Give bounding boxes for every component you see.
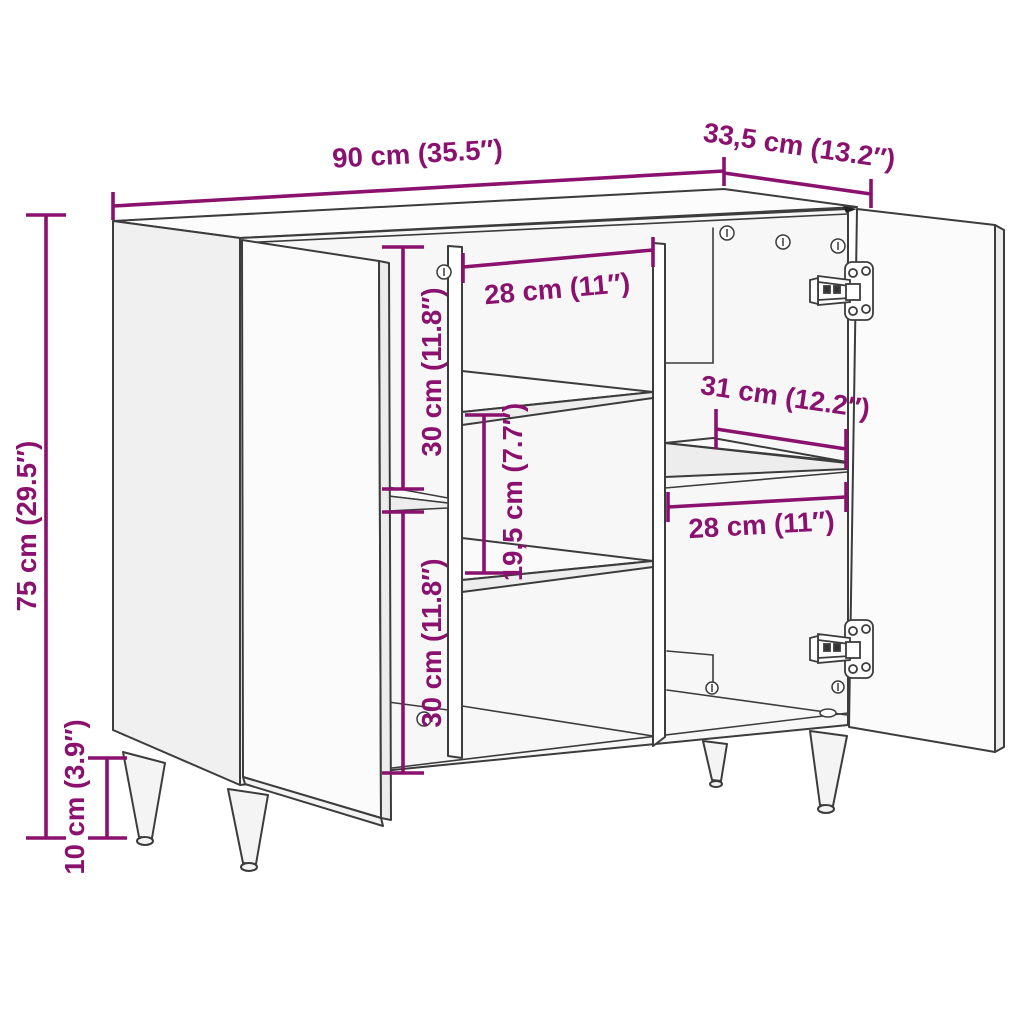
dim-leg-height	[88, 758, 127, 838]
dim-lower-left-height-label: 30 cm (11.8″)	[416, 558, 447, 727]
leg-back-left	[123, 752, 165, 845]
diagram-canvas: 90 cm (35.5″) 33,5 cm (13.2″) 75 cm (29.…	[0, 0, 1024, 1024]
left-side-panel	[113, 221, 240, 785]
leg-front-left	[228, 789, 268, 871]
dim-leg-height-label: 10 cm (3.9″)	[59, 719, 90, 874]
dim-width-label: 90 cm (35.5″)	[331, 133, 503, 173]
divider-left	[448, 246, 462, 758]
dim-upper-left-height-label: 30 cm (11.8″)	[416, 287, 447, 456]
dim-depth-label: 33,5 cm (13.2″)	[701, 116, 897, 174]
left-door	[242, 240, 391, 826]
cabinet-dimension-diagram: 90 cm (35.5″) 33,5 cm (13.2″) 75 cm (29.…	[0, 0, 1024, 1024]
dim-height-label: 75 cm (29.5″)	[11, 441, 42, 612]
divider-right	[653, 243, 665, 746]
leg-back-right	[703, 741, 727, 787]
leg-front-right	[810, 731, 847, 813]
dim-middle-gap-label: 19,5 cm (7.7″)	[497, 403, 528, 581]
